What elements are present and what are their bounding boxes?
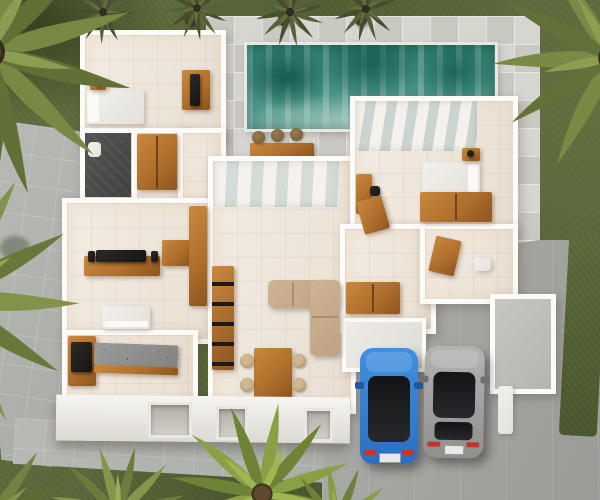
blue-suv (360, 348, 418, 464)
front-window (148, 402, 192, 438)
dining-chair (292, 354, 306, 368)
dining-chair (240, 378, 254, 392)
storage-room (490, 294, 556, 394)
granite-counter (94, 343, 179, 368)
dining-table (254, 348, 292, 398)
palm-trunk (185, 0, 197, 26)
bed-pillows (88, 92, 99, 122)
tv-bedroom-1 (190, 74, 200, 106)
front-window (304, 408, 333, 442)
sofa-cushion-seam (292, 282, 294, 306)
dining-chair (292, 378, 306, 392)
storage-wall-stub (498, 386, 513, 434)
lamp-bedroom-2 (467, 150, 474, 157)
sedan-taillight-right (466, 442, 479, 447)
shrub (0, 236, 30, 260)
cooktop (71, 342, 92, 372)
silver-sedan (423, 345, 485, 458)
palm-trunk (355, 0, 367, 26)
sedan-roof-glass (433, 372, 476, 419)
toilet-bathroom-2 (474, 258, 491, 271)
patio-chair (271, 129, 284, 142)
palm-trunk (278, 2, 290, 26)
speaker-right (151, 251, 158, 262)
suv-taillight-left (364, 450, 376, 455)
bedroom-2-glass-wall (355, 101, 477, 151)
media-shelf (212, 266, 234, 370)
sedan-hood (431, 350, 479, 369)
toilet-bathroom-1 (88, 142, 101, 157)
front-window (216, 406, 248, 440)
sofa-cushion-seam (312, 316, 338, 318)
suv-hood (366, 352, 412, 372)
sedan-mirror-right (480, 376, 489, 383)
bed-master-pillows (104, 321, 148, 327)
floor-plan-scene (0, 0, 600, 500)
wardrobe-2-seam (455, 194, 457, 220)
sedan-license-plate (444, 445, 464, 455)
wardrobe-run-master (189, 206, 207, 306)
sedan-rear-window (434, 422, 472, 441)
wardrobe-seam (156, 136, 158, 188)
suv-license-plate (379, 453, 401, 463)
suv-mirror-left (355, 382, 364, 389)
patio-chair (290, 128, 303, 141)
bed-2-pillows (468, 164, 478, 192)
sofa-sectional-side (310, 280, 340, 356)
suv-roof-glass (368, 376, 410, 442)
tv-master (96, 250, 146, 262)
living-room-glass-doors (214, 161, 340, 207)
lamp (95, 80, 101, 86)
palm-trunk (91, 2, 104, 28)
double-door-seam (372, 284, 374, 312)
suv-taillight-right (402, 450, 414, 455)
suv-mirror-right (414, 382, 423, 389)
sedan-taillight-left (427, 442, 440, 447)
patio-chair (252, 131, 265, 144)
desk-master (162, 240, 190, 266)
dining-chair (240, 354, 254, 368)
sedan-mirror-left (419, 375, 428, 382)
speaker-left (88, 251, 95, 262)
